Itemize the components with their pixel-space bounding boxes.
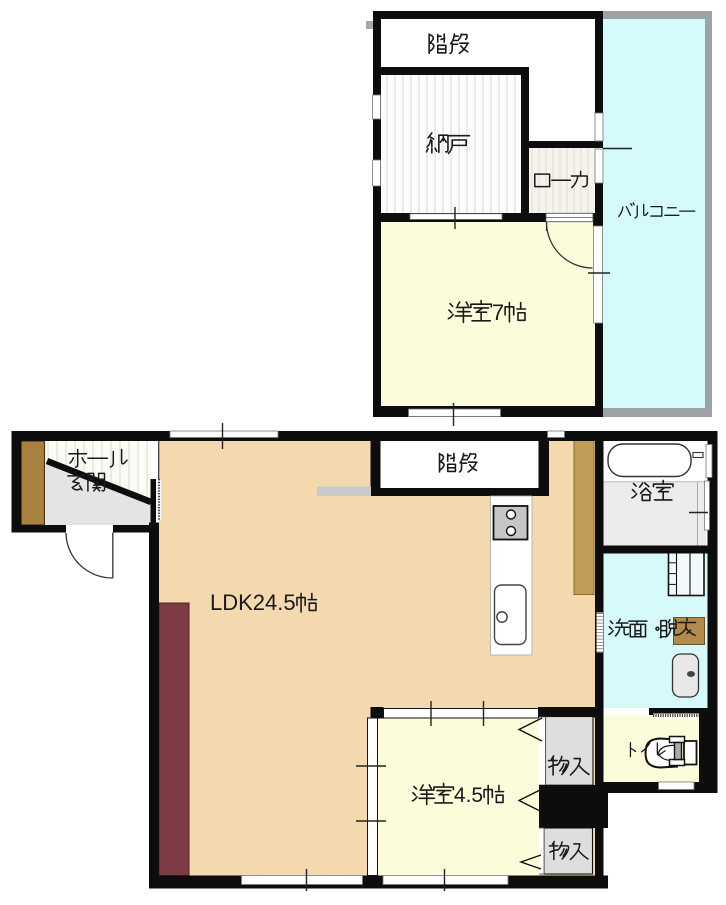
svg-text:4.5: 4.5 (454, 784, 483, 807)
svg-text:LDK24.5: LDK24.5 (210, 590, 296, 615)
svg-text:7: 7 (492, 300, 504, 325)
